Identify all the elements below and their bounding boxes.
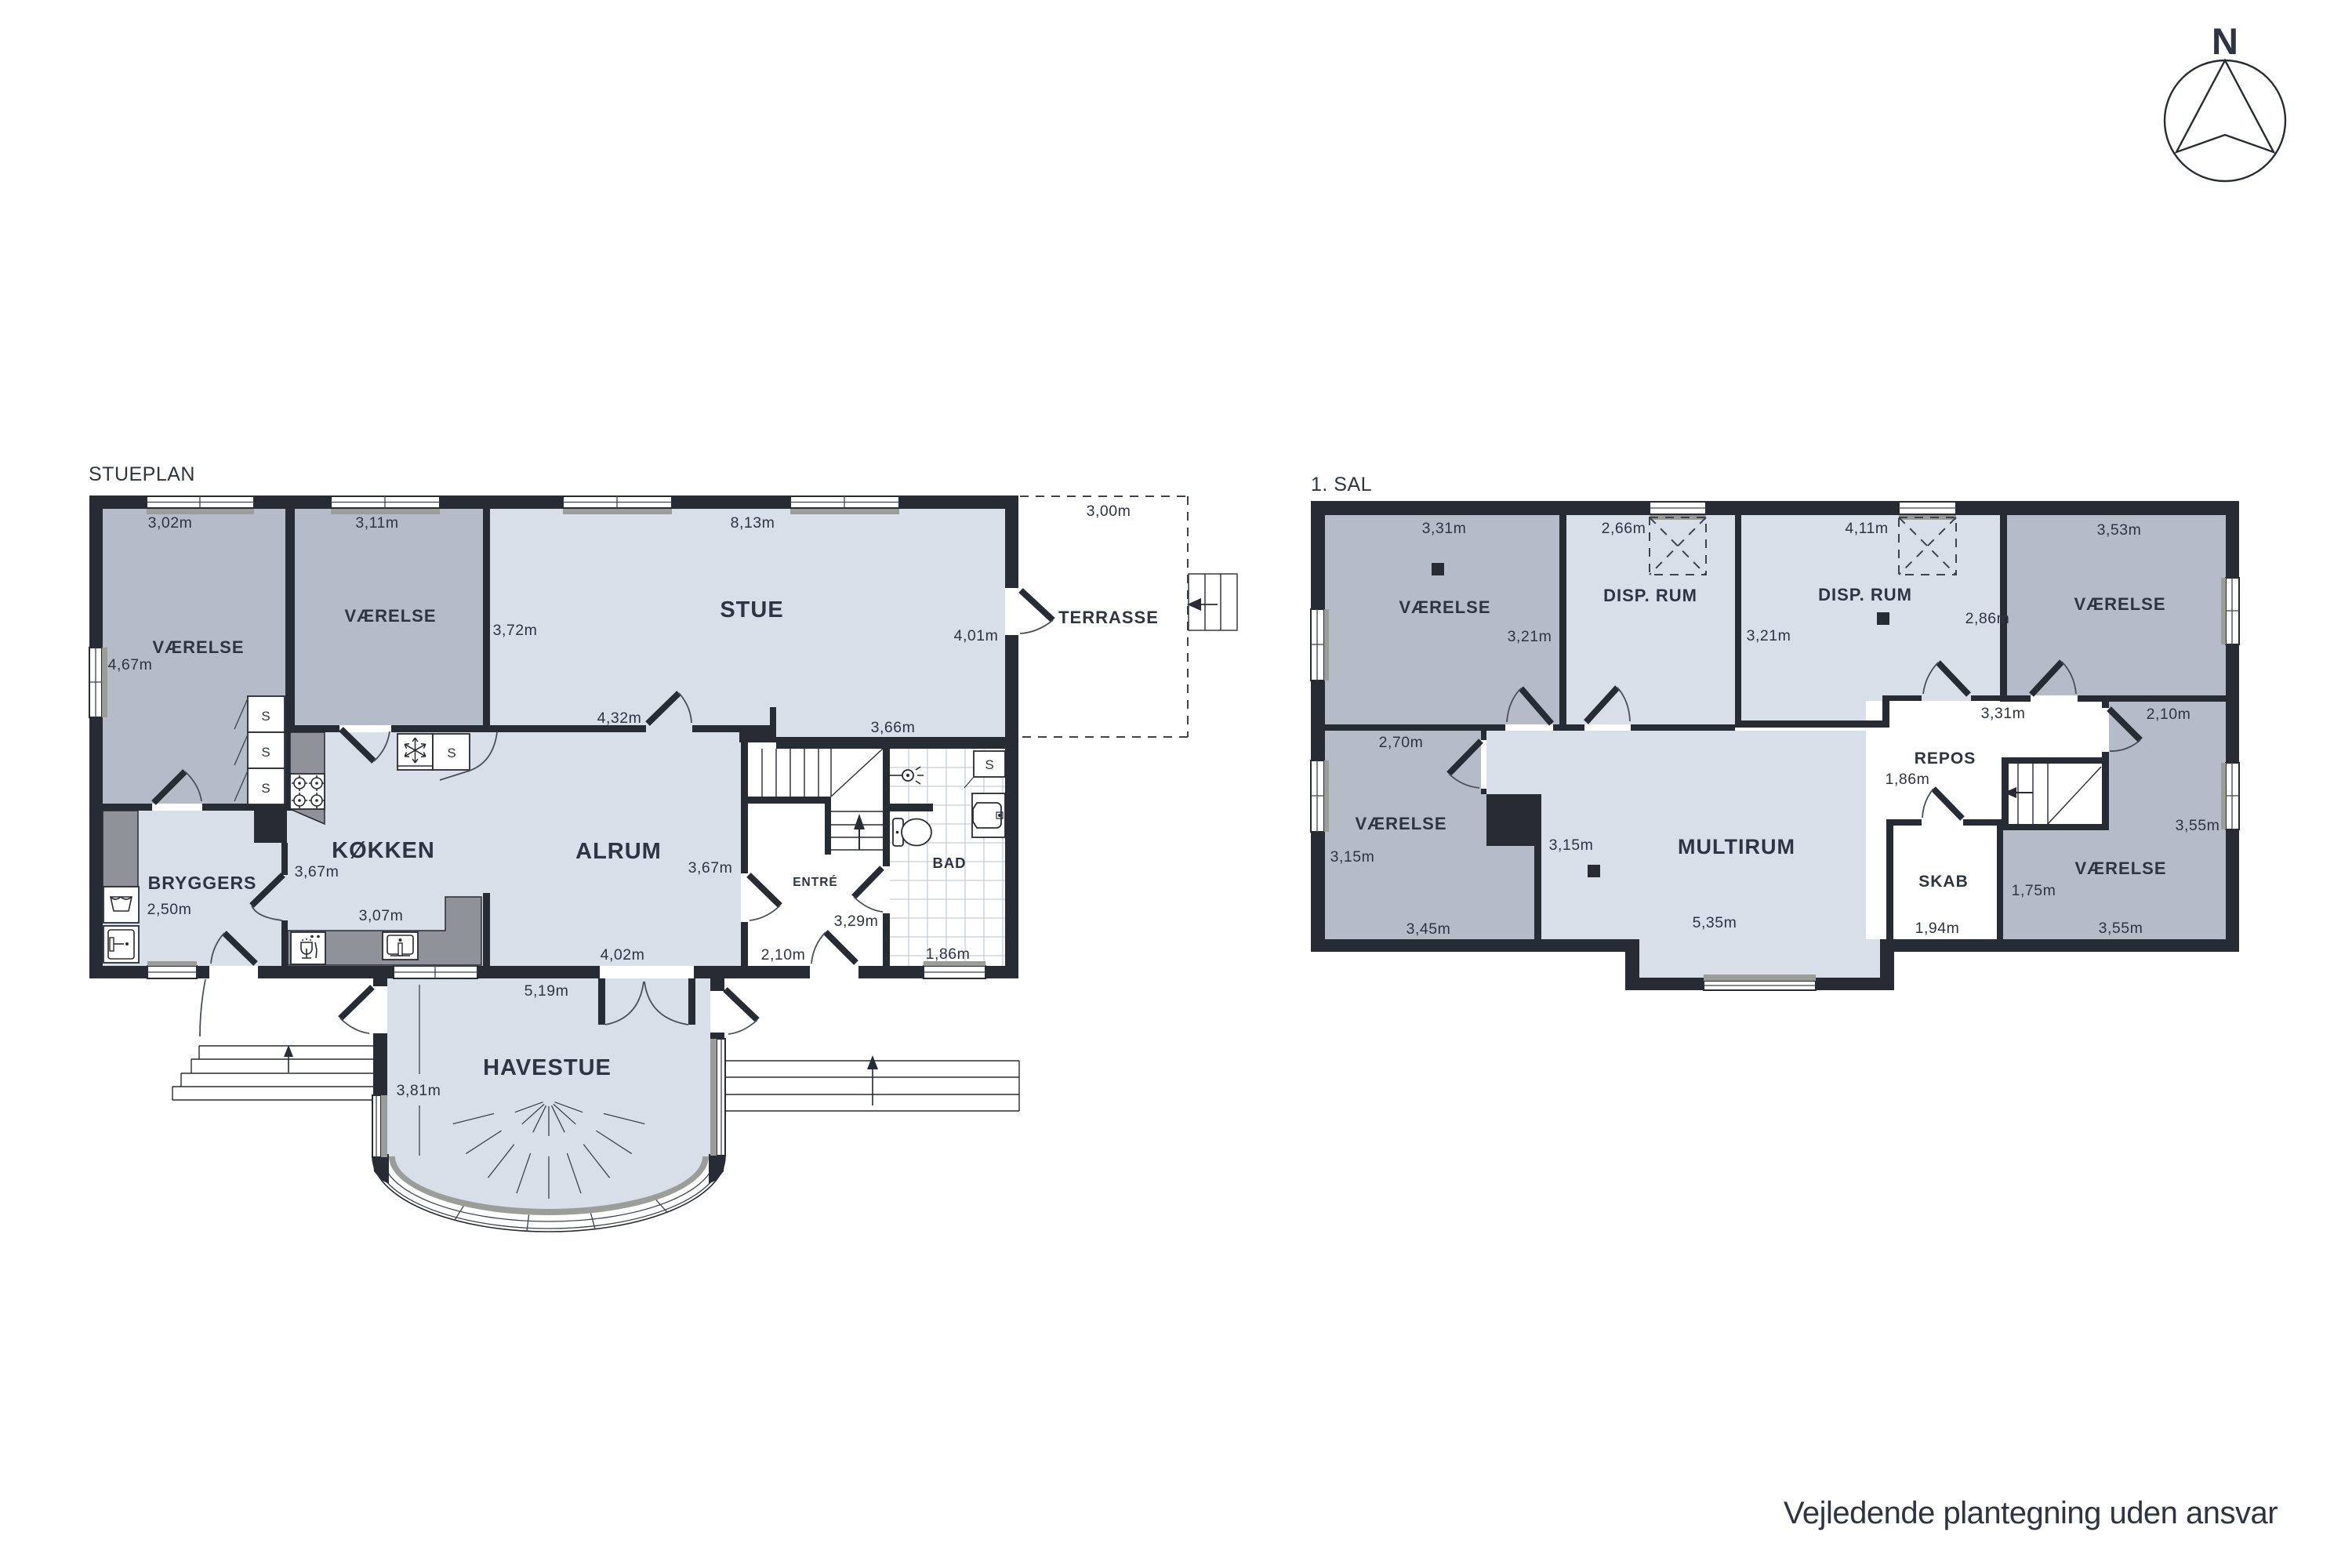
svg-text:S: S xyxy=(985,757,993,772)
svg-text:TERRASSE: TERRASSE xyxy=(1058,608,1159,627)
svg-text:2,70m: 2,70m xyxy=(1379,734,1424,751)
svg-text:3,29m: 3,29m xyxy=(834,913,879,930)
svg-text:8,13m: 8,13m xyxy=(731,514,775,532)
svg-text:3,15m: 3,15m xyxy=(1330,848,1375,866)
svg-text:KØKKEN: KØKKEN xyxy=(332,838,435,863)
svg-text:3,21m: 3,21m xyxy=(1508,628,1552,645)
svg-text:S: S xyxy=(261,709,270,724)
svg-text:3,55m: 3,55m xyxy=(2099,920,2143,937)
svg-text:4,02m: 4,02m xyxy=(601,946,645,964)
svg-text:S: S xyxy=(447,746,456,760)
svg-text:3,31m: 3,31m xyxy=(1422,520,1467,537)
svg-text:3,11m: 3,11m xyxy=(355,514,398,532)
svg-text:ENTRÉ: ENTRÉ xyxy=(793,876,838,889)
svg-text:STUEPLAN: STUEPLAN xyxy=(89,463,195,485)
svg-text:VÆRELSE: VÆRELSE xyxy=(2074,594,2165,614)
svg-text:VÆRELSE: VÆRELSE xyxy=(344,606,436,626)
svg-text:3,72m: 3,72m xyxy=(493,622,538,639)
svg-text:2,50m: 2,50m xyxy=(147,901,192,918)
svg-text:2,66m: 2,66m xyxy=(1602,520,1646,537)
svg-text:ALRUM: ALRUM xyxy=(575,839,662,864)
svg-text:HAVESTUE: HAVESTUE xyxy=(483,1055,612,1080)
svg-text:REPOS: REPOS xyxy=(1915,750,1976,768)
svg-text:SKAB: SKAB xyxy=(1918,873,1969,891)
svg-text:1,86m: 1,86m xyxy=(1886,771,1930,788)
svg-text:3,53m: 3,53m xyxy=(2097,521,2142,539)
svg-text:3,00m: 3,00m xyxy=(1087,503,1131,520)
svg-text:3,21m: 3,21m xyxy=(1747,627,1791,644)
svg-text:3,67m: 3,67m xyxy=(295,863,339,880)
svg-text:3,15m: 3,15m xyxy=(1549,837,1594,854)
svg-text:3,66m: 3,66m xyxy=(871,719,916,736)
svg-text:BRYGGERS: BRYGGERS xyxy=(148,873,257,893)
svg-text:BAD: BAD xyxy=(932,855,966,871)
svg-text:DISP. RUM: DISP. RUM xyxy=(1818,585,1912,604)
svg-text:1,94m: 1,94m xyxy=(1915,920,1960,937)
svg-text:DISP. RUM: DISP. RUM xyxy=(1603,586,1697,605)
svg-text:1,86m: 1,86m xyxy=(926,946,971,963)
svg-text:3,81m: 3,81m xyxy=(397,1082,441,1099)
svg-text:4,11m: 4,11m xyxy=(1845,520,1888,537)
svg-text:3,55m: 3,55m xyxy=(2176,817,2220,834)
svg-text:VÆRELSE: VÆRELSE xyxy=(1355,814,1446,833)
svg-text:2,10m: 2,10m xyxy=(761,946,806,964)
svg-text:3,31m: 3,31m xyxy=(1981,705,2026,722)
svg-text:S: S xyxy=(261,745,270,760)
svg-text:3,67m: 3,67m xyxy=(688,859,733,877)
svg-text:Vejledende plantegning uden an: Vejledende plantegning uden ansvar xyxy=(1784,1496,2278,1530)
svg-text:STUE: STUE xyxy=(720,597,783,622)
svg-text:4,32m: 4,32m xyxy=(597,710,642,727)
svg-text:5,19m: 5,19m xyxy=(524,982,569,1000)
svg-text:3,02m: 3,02m xyxy=(148,514,193,532)
svg-text:N: N xyxy=(2212,20,2238,62)
svg-text:2,86m: 2,86m xyxy=(1965,610,2010,627)
svg-text:MULTIRUM: MULTIRUM xyxy=(1678,835,1795,858)
svg-text:4,01m: 4,01m xyxy=(954,627,999,644)
svg-text:VÆRELSE: VÆRELSE xyxy=(2074,858,2166,878)
svg-text:VÆRELSE: VÆRELSE xyxy=(152,637,244,657)
svg-text:1. SAL: 1. SAL xyxy=(1311,474,1372,495)
svg-text:VÆRELSE: VÆRELSE xyxy=(1399,597,1490,617)
svg-text:4,67m: 4,67m xyxy=(108,656,153,673)
svg-text:3,07m: 3,07m xyxy=(359,907,404,924)
svg-text:5,35m: 5,35m xyxy=(1693,914,1737,931)
svg-text:1,75m: 1,75m xyxy=(2012,882,2056,899)
svg-text:S: S xyxy=(261,781,270,796)
svg-text:3,45m: 3,45m xyxy=(1406,920,1451,938)
svg-text:2,10m: 2,10m xyxy=(2147,706,2191,723)
